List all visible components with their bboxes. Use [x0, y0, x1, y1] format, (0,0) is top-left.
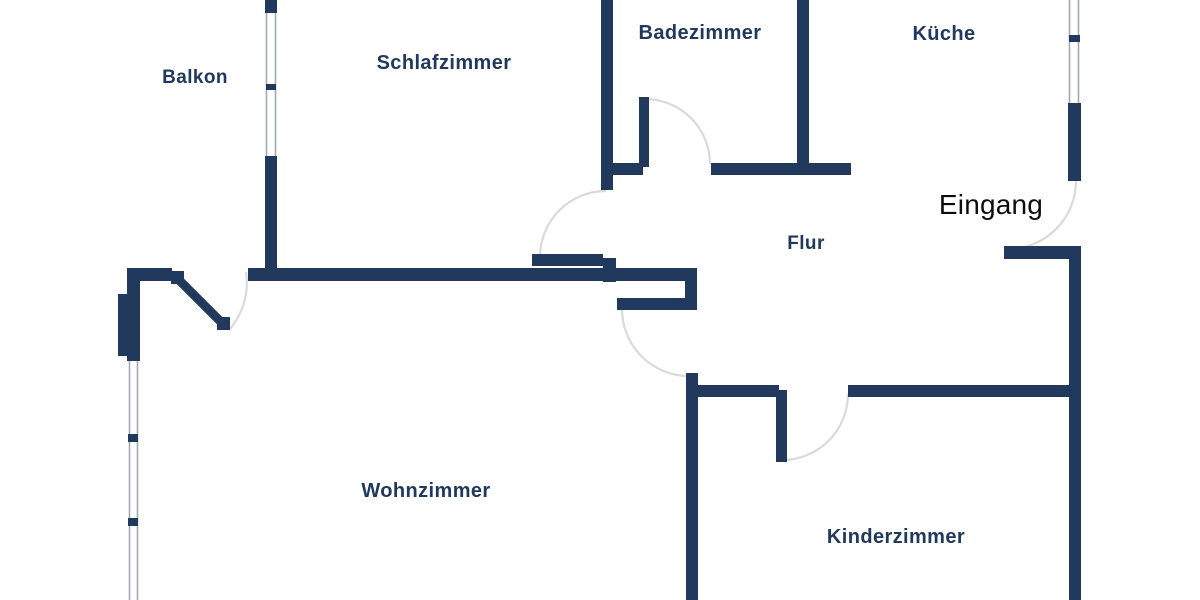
badezimmer-door-leaf	[639, 97, 649, 167]
wall	[797, 0, 809, 175]
floorplan-image: BalkonSchlafzimmerBadezimmerKücheFlurEin…	[0, 0, 1200, 600]
wall	[266, 84, 276, 90]
entrance-door-leaf	[1004, 246, 1081, 259]
wall	[265, 156, 277, 268]
wall	[128, 434, 138, 442]
wall	[127, 354, 140, 361]
wall	[685, 268, 697, 310]
wall	[601, 0, 613, 190]
wall	[698, 385, 779, 397]
kinderzimmer-door-leaf	[776, 390, 787, 462]
room-label-eingang: Eingang	[939, 189, 1043, 220]
room-label-balkon: Balkon	[162, 67, 228, 88]
wall	[1068, 103, 1081, 181]
balcony-door-hinge-cap	[171, 271, 184, 284]
wall	[848, 385, 1081, 397]
room-label-kinderzimmer: Kinderzimmer	[827, 526, 965, 548]
wall	[686, 373, 698, 600]
wall	[711, 163, 851, 175]
wohnzimmer-door-leaf	[617, 298, 685, 310]
wall	[248, 268, 697, 281]
floorplan-canvas: BalkonSchlafzimmerBadezimmerKücheFlurEin…	[0, 0, 1200, 600]
floorplan-background	[0, 0, 1200, 600]
wall	[265, 0, 277, 13]
room-label-wohnzimmer: Wohnzimmer	[361, 480, 490, 502]
wall	[118, 294, 140, 356]
wall	[613, 163, 643, 175]
schlafzimmer-door-leaf	[532, 254, 603, 266]
wall	[127, 268, 140, 298]
room-label-kueche: Küche	[912, 23, 975, 45]
schlafzimmer-door-leaf	[603, 258, 616, 282]
balcony-door-hinge-cap	[217, 317, 230, 330]
room-label-schlafzimmer: Schlafzimmer	[377, 52, 512, 74]
wall	[1069, 35, 1080, 42]
room-label-badezimmer: Badezimmer	[639, 22, 762, 44]
room-label-flur: Flur	[787, 233, 825, 254]
wall	[128, 518, 138, 526]
wall	[1069, 246, 1081, 600]
